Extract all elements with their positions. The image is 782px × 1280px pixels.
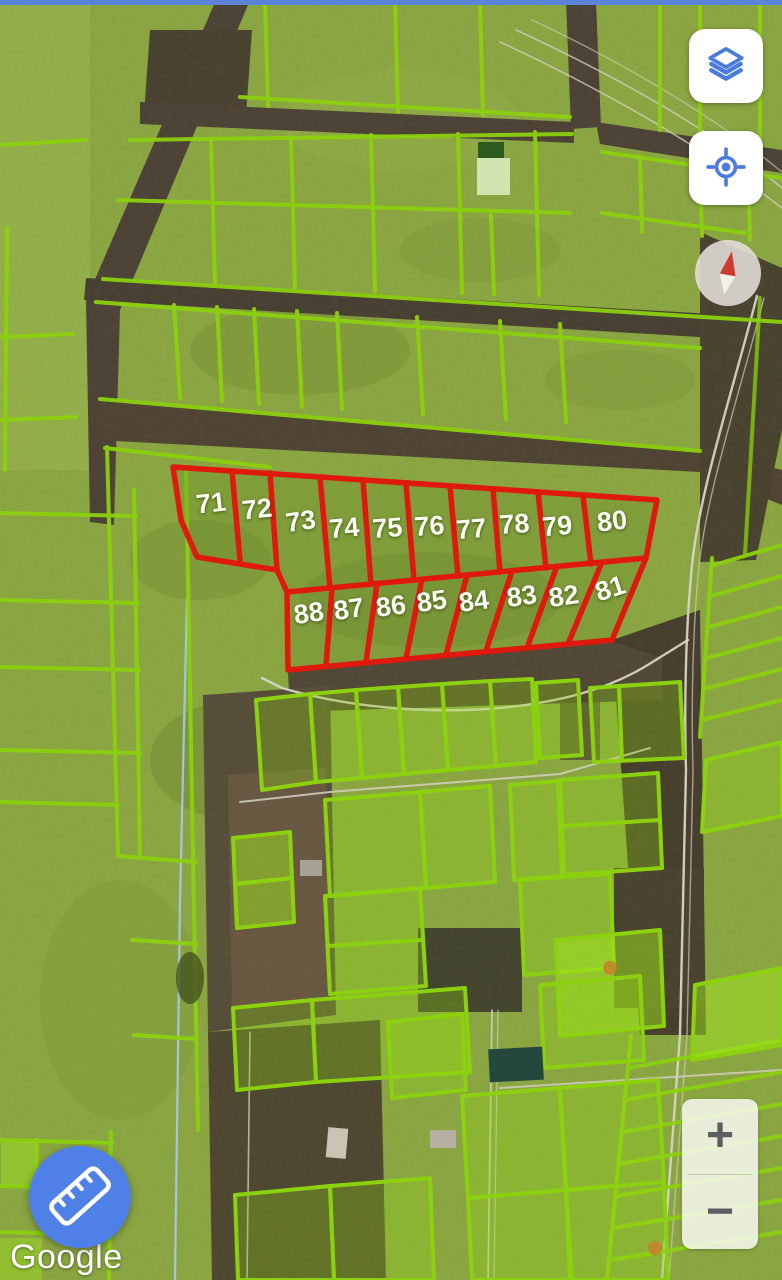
parcel-77-label[interactable]: 77 [455,513,488,546]
parcel-74-label[interactable]: 74 [328,512,361,545]
satellite-map[interactable]: 717273747576777879808887868584838281 [0,0,782,1280]
my-location-button[interactable] [689,131,763,205]
compass-button[interactable] [694,239,762,307]
parcel-79-label[interactable]: 79 [541,510,574,543]
compass-needle-icon [694,239,762,307]
zoom-in-button[interactable]: + [682,1099,758,1174]
parcel-85-label[interactable]: 85 [415,584,449,618]
measure-button[interactable] [29,1146,131,1248]
parcel-72-label[interactable]: 72 [241,493,274,526]
parcel-82-label[interactable]: 82 [547,579,581,613]
parcel-88-label[interactable]: 88 [292,596,326,630]
layers-icon [705,44,747,89]
status-bar [0,0,782,5]
ruler-icon [37,1153,123,1242]
parcel-87-label[interactable]: 87 [332,592,366,626]
parcel-80-label[interactable]: 80 [596,505,629,538]
parcel-83-label[interactable]: 83 [505,579,539,613]
zoom-out-button[interactable]: − [682,1175,758,1250]
zoom-control: + − [682,1099,758,1249]
layers-button[interactable] [689,29,763,103]
parcel-84-label[interactable]: 84 [457,584,490,617]
parcel-75-label[interactable]: 75 [371,512,403,544]
parcel-73-label[interactable]: 73 [284,504,318,538]
my-location-icon [705,146,747,191]
parcel-86-label[interactable]: 86 [374,589,407,622]
parcel-76-label[interactable]: 76 [413,510,445,542]
parcel-71-label[interactable]: 71 [195,487,228,520]
parcel-78-label[interactable]: 78 [498,508,530,540]
map-screen: 717273747576777879808887868584838281 + −… [0,0,782,1280]
